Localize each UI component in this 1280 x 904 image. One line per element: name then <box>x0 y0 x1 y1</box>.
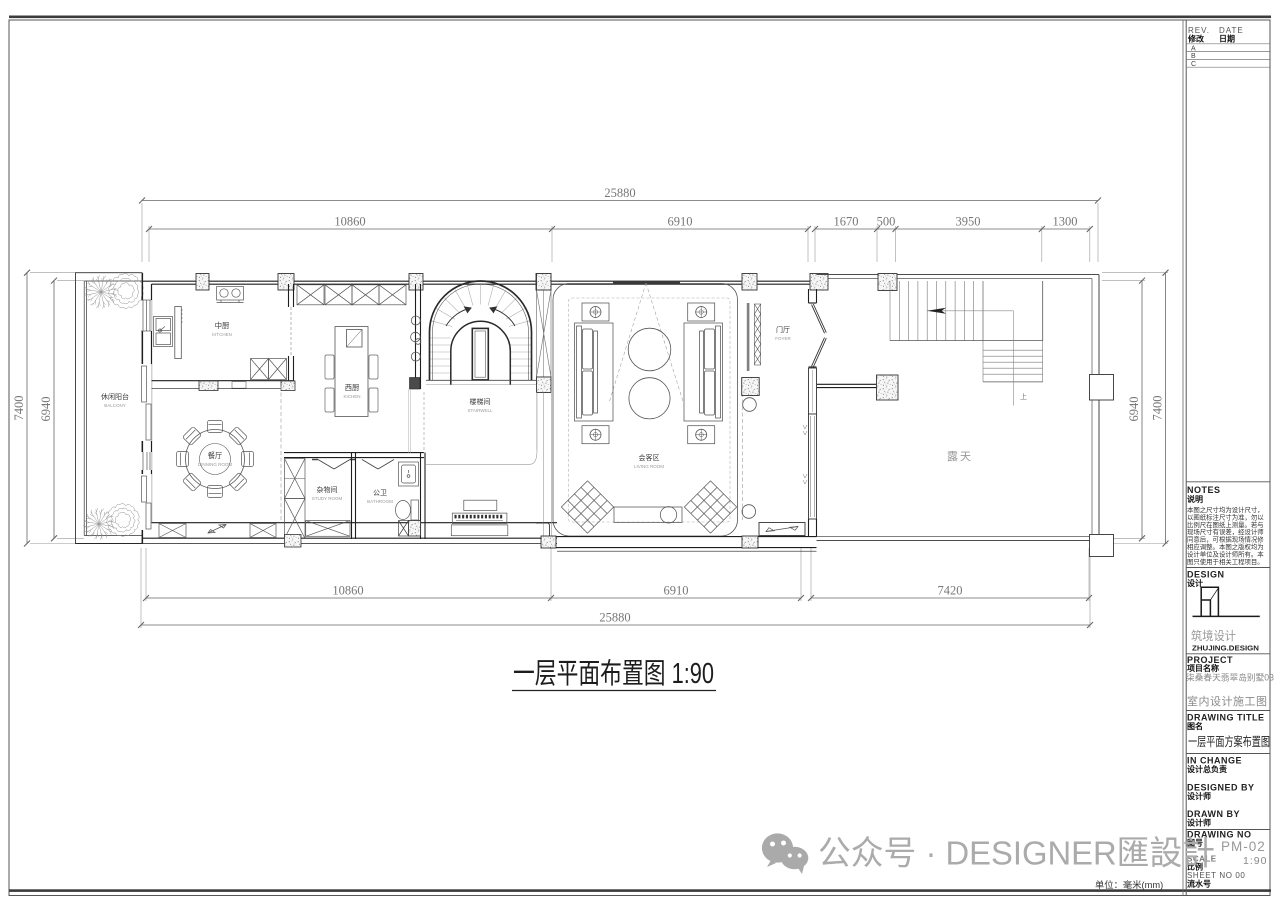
svg-text:7400: 7400 <box>12 396 26 421</box>
svg-text:中厨: 中厨 <box>215 321 230 330</box>
svg-text:露天: 露天 <box>947 450 973 463</box>
svg-text:6940: 6940 <box>39 397 53 422</box>
svg-text:门厅: 门厅 <box>776 325 790 334</box>
svg-text:会客区: 会客区 <box>639 453 660 462</box>
svg-text:单位：毫米(mm): 单位：毫米(mm) <box>1095 879 1163 890</box>
svg-text:500: 500 <box>877 215 896 229</box>
svg-text:STAIRWELL: STAIRWELL <box>467 408 493 413</box>
svg-text:KITCHEN: KITCHEN <box>212 332 232 337</box>
svg-text:1:90: 1:90 <box>1243 855 1267 867</box>
svg-text:DESIGN: DESIGN <box>1187 570 1225 580</box>
svg-text:6910: 6910 <box>668 215 693 229</box>
svg-text:项目名称: 项目名称 <box>1187 663 1219 673</box>
svg-text:NOTES: NOTES <box>1187 485 1221 495</box>
svg-text:公众号 · DESIGNER匯設計: 公众号 · DESIGNER匯設計 <box>818 836 1215 873</box>
svg-text:筑境设计: 筑境设计 <box>1191 628 1236 643</box>
svg-text:比例尺在图纸上测量。若与: 比例尺在图纸上测量。若与 <box>1187 520 1264 529</box>
svg-text:BALCONY: BALCONY <box>104 403 126 408</box>
svg-text:PM-02: PM-02 <box>1221 839 1266 854</box>
svg-text:本图之尺寸均为设计尺寸，: 本图之尺寸均为设计尺寸， <box>1187 505 1264 514</box>
svg-text:LIVING ROOM: LIVING ROOM <box>634 464 664 469</box>
svg-text:休闲阳台: 休闲阳台 <box>101 392 129 401</box>
svg-text:25880: 25880 <box>604 186 635 200</box>
svg-text:10860: 10860 <box>334 215 365 229</box>
svg-text:一层平面方案布置图: 一层平面方案布置图 <box>1188 734 1270 749</box>
svg-text:ZHUJING.DESIGN: ZHUJING.DESIGN <box>1192 644 1259 653</box>
svg-text:B: B <box>1191 53 1196 60</box>
svg-text:A: A <box>1191 45 1196 52</box>
svg-text:相应调整。本图之版权均为: 相应调整。本图之版权均为 <box>1187 542 1264 551</box>
svg-text:6910: 6910 <box>664 584 689 598</box>
svg-text:3950: 3950 <box>956 215 981 229</box>
svg-text:设计师: 设计师 <box>1187 791 1211 801</box>
svg-text:说明: 说明 <box>1187 494 1203 504</box>
svg-text:室内设计施工图: 室内设计施工图 <box>1187 694 1268 708</box>
svg-text:1670: 1670 <box>834 215 859 229</box>
svg-text:楼梯间: 楼梯间 <box>470 397 491 406</box>
svg-text:STUDY ROOM: STUDY ROOM <box>312 496 343 501</box>
svg-text:设计师: 设计师 <box>1187 818 1211 828</box>
svg-text:1300: 1300 <box>1053 215 1078 229</box>
svg-text:C: C <box>1191 61 1196 68</box>
svg-text:7400: 7400 <box>1151 396 1165 421</box>
svg-text:日期: 日期 <box>1219 34 1235 44</box>
svg-text:DRAWN BY: DRAWN BY <box>1187 809 1240 819</box>
svg-text:流水号: 流水号 <box>1187 879 1211 889</box>
svg-text:修改: 修改 <box>1187 34 1205 44</box>
svg-text:图名: 图名 <box>1187 721 1203 731</box>
svg-text:DRAWING TITLE: DRAWING TITLE <box>1187 713 1265 723</box>
svg-text:IN CHANGE: IN CHANGE <box>1187 756 1242 766</box>
svg-text:餐厅: 餐厅 <box>208 451 223 460</box>
svg-text:杂物间: 杂物间 <box>317 485 338 494</box>
svg-text:现场尺寸有误差，经设计师: 现场尺寸有误差，经设计师 <box>1187 527 1264 536</box>
svg-text:公卫: 公卫 <box>373 489 387 497</box>
svg-text:一层平面布置图 1:90: 一层平面布置图 1:90 <box>513 658 714 690</box>
svg-text:25880: 25880 <box>599 611 630 625</box>
svg-text:10860: 10860 <box>332 584 363 598</box>
svg-text:DINNING ROOM: DINNING ROOM <box>198 462 233 467</box>
svg-text:同意后，可根据现场情况修: 同意后，可根据现场情况修 <box>1187 535 1264 544</box>
svg-text:西厨: 西厨 <box>345 383 360 392</box>
svg-text:KICHEN: KICHEN <box>343 394 360 399</box>
svg-text:上: 上 <box>1020 392 1027 401</box>
svg-text:柒桑春天翡翠岛别墅03: 柒桑春天翡翠岛别墅03 <box>1186 672 1274 683</box>
svg-text:DESIGNED BY: DESIGNED BY <box>1187 783 1255 793</box>
svg-text:设计单位及设计师所有。本: 设计单位及设计师所有。本 <box>1187 549 1264 558</box>
svg-text:6940: 6940 <box>1127 397 1141 422</box>
svg-text:BATHROOM: BATHROOM <box>367 499 393 504</box>
svg-text:FOYER: FOYER <box>775 336 791 341</box>
svg-text:设计总负责: 设计总负责 <box>1187 764 1227 774</box>
svg-text:图只使用于相关工程项目。: 图只使用于相关工程项目。 <box>1187 557 1264 566</box>
svg-text:7420: 7420 <box>938 584 963 598</box>
svg-text:以图纸标注尺寸为准，勿以: 以图纸标注尺寸为准，勿以 <box>1187 512 1264 521</box>
